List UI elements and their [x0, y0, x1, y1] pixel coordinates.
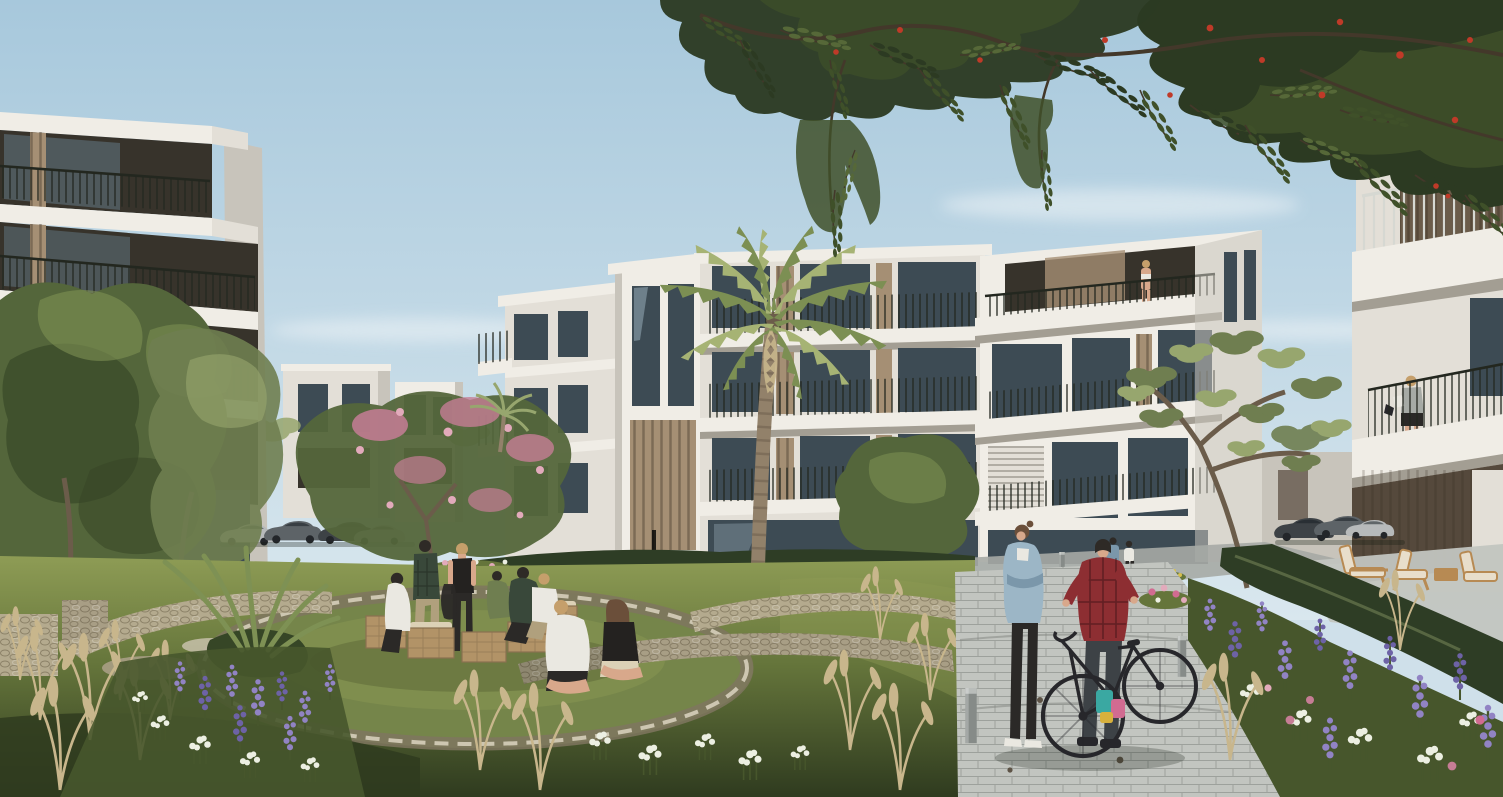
- bollard: [965, 688, 977, 743]
- pink-flowering-tree: [296, 391, 572, 562]
- courtyard-render-image: [0, 0, 1503, 797]
